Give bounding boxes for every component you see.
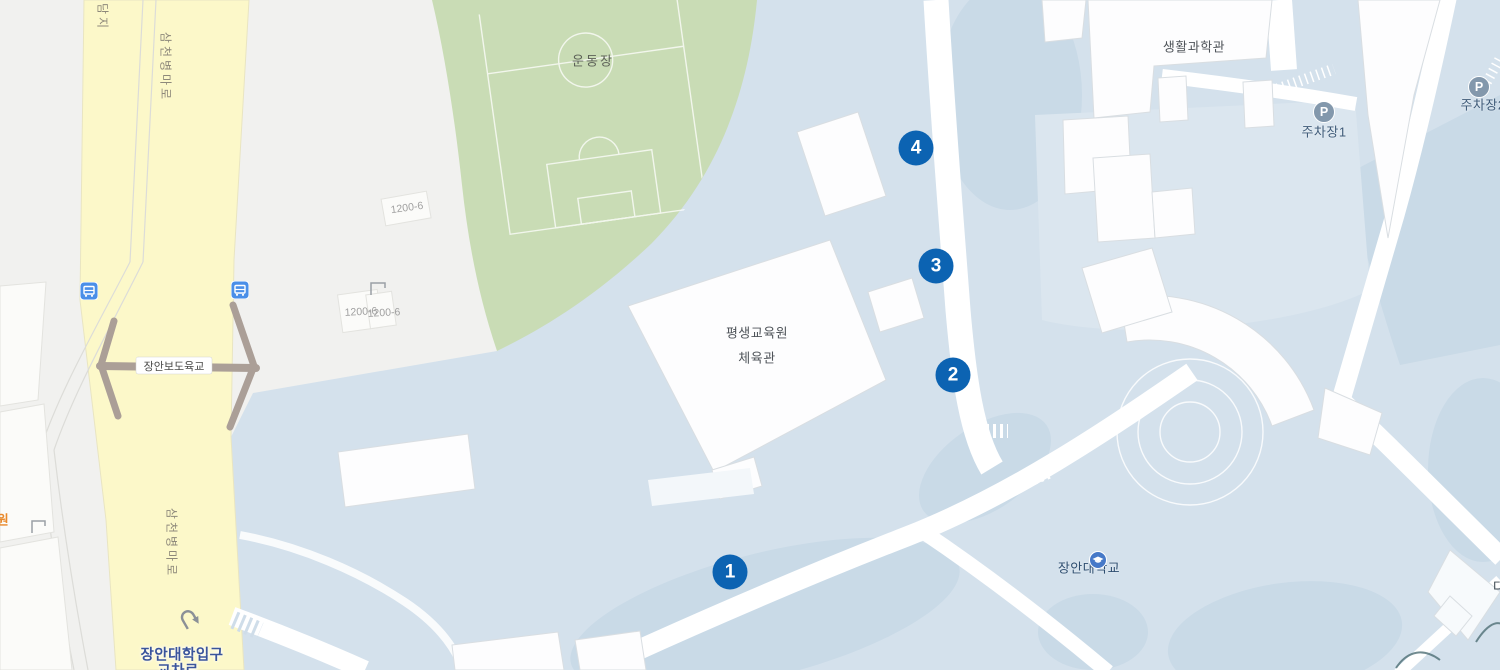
label-sports-field: 운동장 xyxy=(572,51,614,70)
parking-icon[interactable]: P xyxy=(1313,101,1335,123)
label-parking1: 주차장1 xyxy=(1301,122,1346,141)
route-marker-2[interactable]: 2 xyxy=(936,358,971,393)
label-intersection-line2: 교차로 xyxy=(157,660,199,670)
label-parcel-3: 1200-6 xyxy=(367,306,400,320)
route-marker-3[interactable]: 3 xyxy=(919,249,954,284)
map-canvas[interactable]: 운동장 생활과학관 평생교육원 체육관 주차장1 주차장2 장안대학교 삼천병마… xyxy=(0,0,1500,670)
label-road-samcheonbyeongma-bottom: 삼천병마로 xyxy=(164,508,181,578)
label-gym-line2: 체육관 xyxy=(738,348,775,367)
parking-icon[interactable]: P xyxy=(1468,76,1490,98)
route-marker-1[interactable]: 1 xyxy=(713,555,748,590)
label-pedestrian-bridge: 장안보도육교 xyxy=(144,358,205,374)
label-partial-poi-right: 디 xyxy=(1493,577,1500,596)
label-road-bongdam: 봉담지 xyxy=(95,0,112,31)
route-marker-4[interactable]: 4 xyxy=(899,131,934,166)
label-road-samcheonbyeongma-top: 삼천병마로 xyxy=(158,32,175,102)
label-life-science-hall: 생활과학관 xyxy=(1163,37,1225,56)
label-partial-poi-left: 원 xyxy=(0,510,9,529)
label-gym-line1: 평생교육원 xyxy=(726,323,788,342)
